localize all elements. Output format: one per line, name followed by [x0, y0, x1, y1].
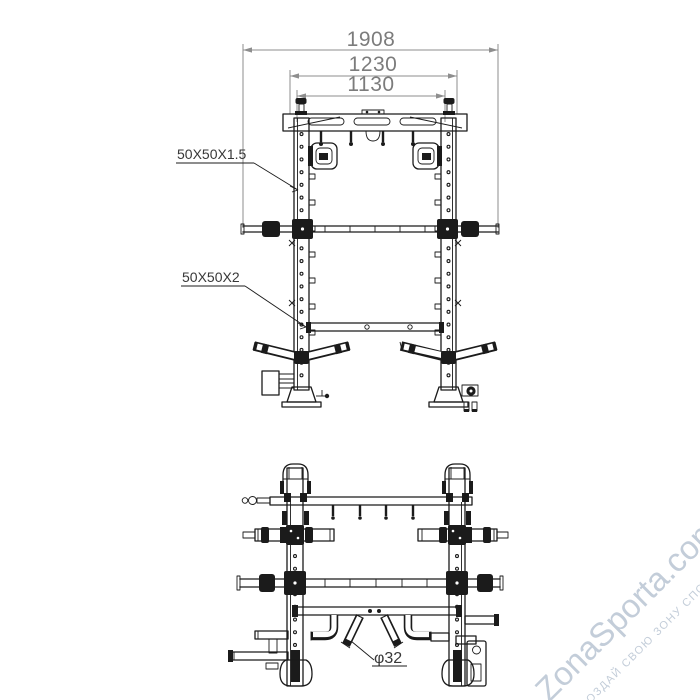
pullup-crossmember	[283, 110, 467, 146]
technical-drawing: 1908 1230 1130	[0, 0, 700, 700]
watermark: ZonaSporta.com СОЗДАЙ СВОЮ ЗОНУ СПОРТА	[528, 509, 700, 700]
j-hooks	[308, 143, 442, 169]
dimension-text-1130: 1130	[347, 73, 394, 96]
pulley-attachment	[462, 385, 478, 412]
smith-bar	[241, 219, 499, 239]
callout-base-tube-spec: 50X50X2	[181, 269, 306, 329]
rear-barbell	[237, 571, 503, 595]
bar-collar-left	[262, 221, 280, 237]
rear-hanging-pegs	[331, 505, 415, 520]
rear-upper-crossbar	[242, 497, 472, 520]
callout-text-50x50x1-5: 50X50X1.5	[177, 146, 246, 162]
rear-plate-holders	[243, 525, 508, 545]
rear-bottom-bars-left	[228, 631, 288, 662]
rear-top-caps	[280, 464, 473, 502]
lower-crossbar	[306, 322, 444, 333]
callout-upright-tube-spec: 50X50X1.5	[176, 146, 298, 192]
side-bracket-left	[262, 371, 294, 395]
rear-view: φ32	[228, 464, 508, 686]
rear-lower-crossbar	[292, 605, 462, 617]
front-view: 1908 1230 1130	[176, 28, 499, 412]
dimension-text-1908: 1908	[347, 28, 396, 51]
rear-feet	[266, 650, 474, 686]
front-feet	[282, 385, 478, 412]
rear-handle-tubes	[311, 615, 431, 648]
bar-collar-right	[461, 221, 479, 237]
plate-holder-arms	[253, 342, 497, 364]
bench-bracket	[467, 641, 486, 686]
rear-collar-left	[259, 574, 275, 592]
rear-collar-right	[477, 574, 493, 592]
guide-rod-knobs	[295, 98, 455, 115]
callout-text-phi32: φ32	[374, 650, 402, 667]
drawing-canvas: 1908 1230 1130	[0, 0, 700, 700]
callout-text-50x50x2: 50X50X2	[182, 269, 240, 285]
